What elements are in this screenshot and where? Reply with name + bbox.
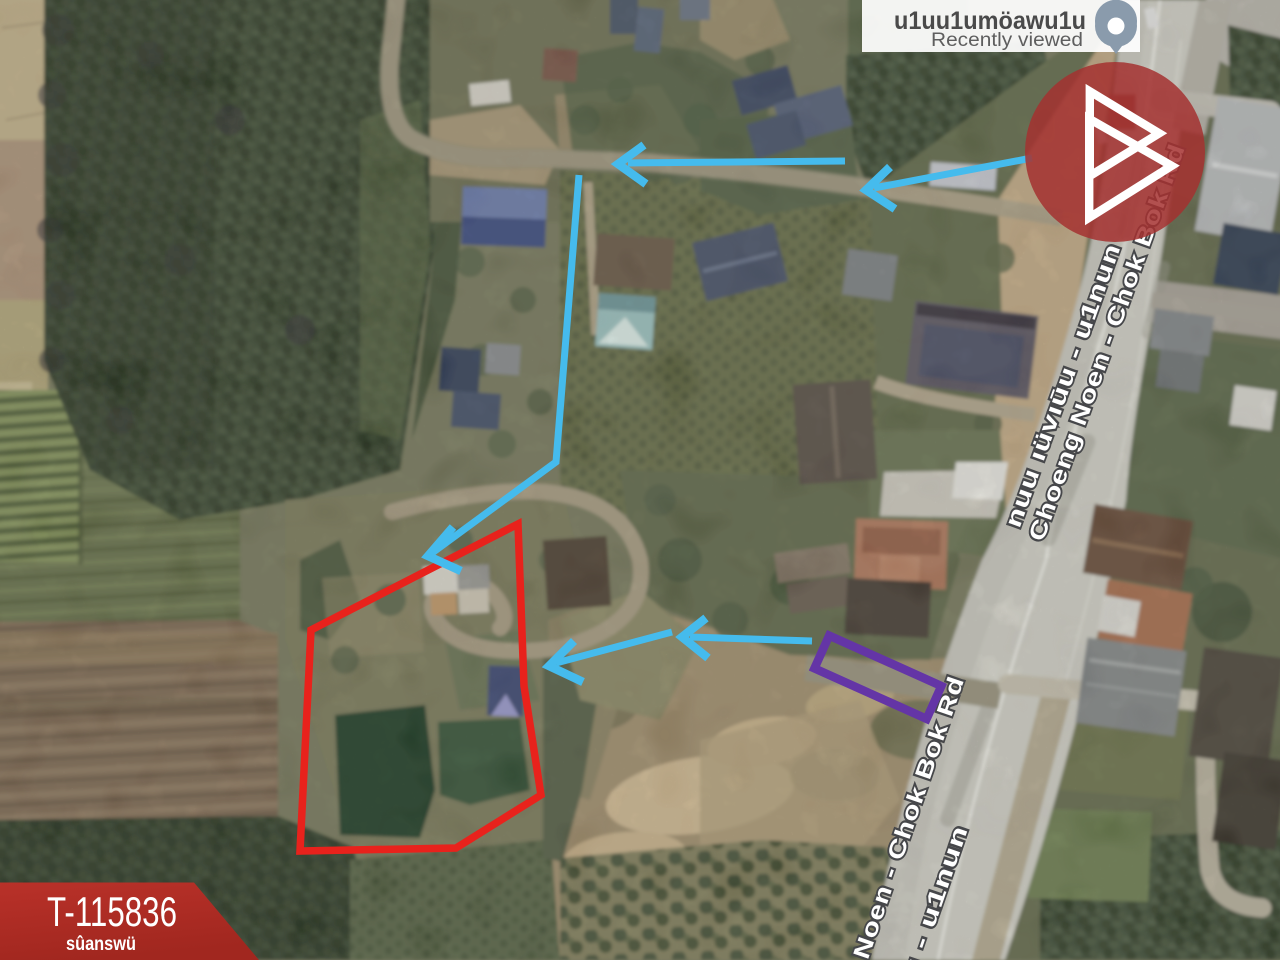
svg-text:sûanswü: sûanswü bbox=[66, 934, 136, 955]
svg-text:Recently viewed: Recently viewed bbox=[931, 29, 1083, 51]
svg-text:T-115836: T-115836 bbox=[47, 888, 177, 935]
